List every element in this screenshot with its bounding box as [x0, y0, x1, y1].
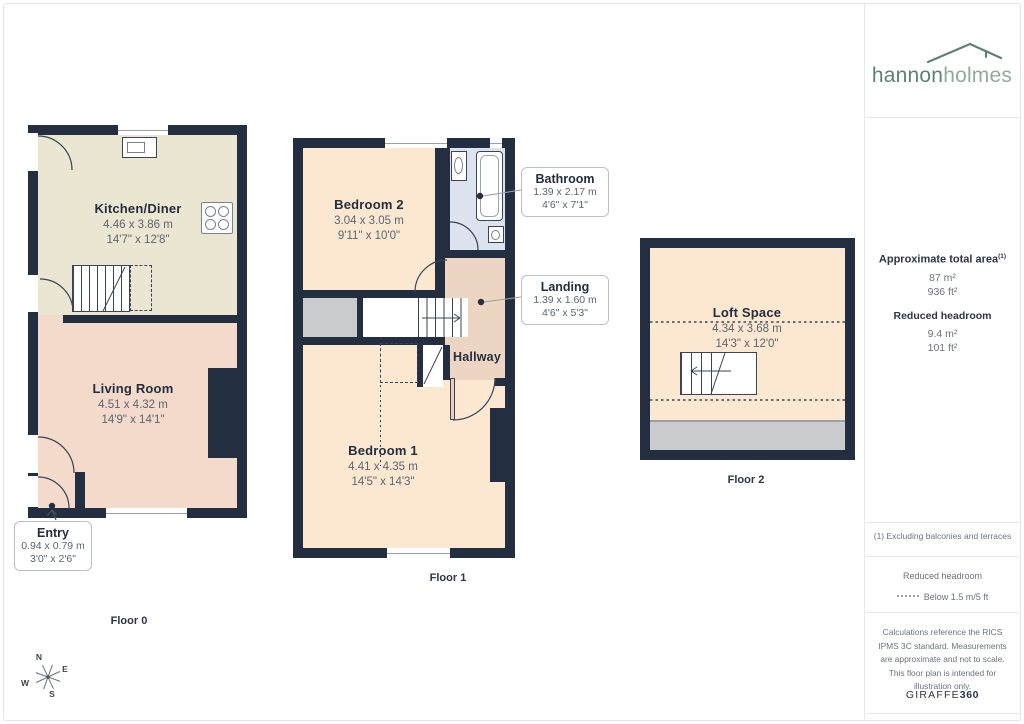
wall [63, 315, 237, 323]
compass-south-label: S [49, 689, 55, 699]
callout-name: Entry [17, 526, 89, 540]
callout-dim-imperial: 4'6" x 7'1" [524, 199, 606, 212]
door-leaf [450, 378, 455, 420]
total-area-title: Approximate total area(1) [866, 253, 1019, 266]
room-bedroom2 [303, 148, 435, 290]
compass-east-label: E [62, 664, 68, 674]
stair-treads [681, 353, 713, 394]
legend-title: Reduced headroom [866, 571, 1019, 581]
floor0-plan [28, 125, 247, 518]
brand-logo-part1: hannon [872, 64, 943, 87]
callout-dim-imperial: 3'0" x 2'6" [17, 553, 89, 566]
floor2-label: Floor 2 [711, 474, 781, 486]
wall [495, 378, 505, 386]
reduced-headroom-area [650, 422, 845, 450]
stove-icon [201, 202, 233, 234]
compass-north-label: N [36, 652, 42, 662]
stair-void-lower [423, 345, 443, 387]
giraffe-text: GIRAFFE [906, 689, 960, 701]
sink-bowl [454, 157, 463, 174]
door-opening [28, 275, 38, 312]
reduced-headroom-title: Reduced headroom [866, 310, 1019, 322]
floor2-plan [640, 238, 855, 460]
callout-dim-metric: 0.94 x 0.79 m [17, 540, 89, 553]
sidebar-rule [866, 612, 1019, 613]
total-area-imperial: 936 ft² [866, 285, 1019, 300]
wall [443, 345, 450, 380]
roof-icon [924, 40, 1006, 64]
wall [478, 250, 505, 258]
brand-logo-text: hannonholmes [866, 64, 1018, 88]
dotted-line-icon [897, 595, 919, 597]
burner-icon [205, 206, 216, 217]
callout-landing: Landing 1.39 x 1.60 m 4'6" x 5'3" [521, 275, 609, 325]
burner-icon [218, 219, 229, 230]
callout-dim-metric: 1.39 x 1.60 m [524, 294, 606, 307]
giraffe360-brand: GIRAFFE360 [866, 689, 1019, 701]
entry-wall [75, 472, 85, 508]
wall [303, 290, 415, 298]
sink-basin [127, 142, 145, 153]
callout-dim-imperial: 4'6" x 5'3" [524, 307, 606, 320]
stairwell-void [363, 298, 418, 337]
bathtub [476, 151, 503, 221]
burner-icon [205, 219, 216, 230]
bathroom-sink [451, 151, 467, 181]
bathroom-window [490, 138, 502, 148]
bedroom1-window [387, 548, 450, 558]
chimney-breast-wall [490, 408, 505, 482]
floor0-label: Floor 0 [94, 615, 164, 627]
sidebar-rule [866, 556, 1019, 557]
bathtub-inner [480, 155, 499, 217]
living-room-window [106, 508, 187, 518]
legend-value: Below 1.5 m/5 ft [924, 592, 989, 602]
compass-west-label: W [21, 678, 29, 688]
sidebar-rule [866, 117, 1019, 118]
area-footnote: (1) Excluding balconies and terraces [866, 531, 1019, 541]
door-opening [28, 133, 38, 171]
reduced-headroom-metric: 9.4 m² [866, 327, 1019, 342]
reduced-headroom-imperial: 101 ft² [866, 341, 1019, 356]
wall [435, 148, 450, 250]
callout-bathroom: Bathroom 1.39 x 2.17 m 4'6" x 7'1" [521, 167, 609, 217]
sidebar-divider [864, 4, 865, 720]
staircase [418, 298, 468, 337]
staircase [72, 265, 130, 312]
door-opening [28, 435, 38, 473]
loft-staircase [680, 352, 757, 395]
callout-dim-metric: 1.39 x 2.17 m [524, 186, 606, 199]
legend-row: Below 1.5 m/5 ft [866, 587, 1019, 605]
callout-entry: Entry 0.94 x 0.79 m 3'0" x 2'6" [14, 521, 92, 571]
brand-logo: hannonholmes [866, 40, 1018, 96]
reduced-headroom-values: 9.4 m² 101 ft² [866, 327, 1019, 356]
sidebar-rule [866, 713, 1019, 714]
burner-icon [218, 206, 229, 217]
toilet-bowl [491, 230, 500, 240]
total-area-values: 87 m² 936 ft² [866, 271, 1019, 300]
reduced-headroom-area [303, 298, 357, 337]
disclaimer-text: Calculations reference the RICS IPMS 3C … [872, 626, 1013, 694]
footnote-marker: (1) [998, 253, 1006, 260]
callout-name: Bathroom [524, 172, 606, 186]
staircase-dashed-extent [130, 265, 152, 311]
wall [445, 250, 450, 258]
floor1-label: Floor 1 [413, 572, 483, 584]
total-area-metric: 87 m² [866, 271, 1019, 286]
sidebar-rule [866, 522, 1019, 523]
area-summary: Approximate total area(1) 87 m² 936 ft² … [866, 253, 1019, 356]
toilet [488, 226, 504, 243]
floor1-plan [293, 138, 515, 558]
kitchen-sink [122, 137, 157, 158]
brand-logo-part2: holmes [943, 64, 1012, 87]
door-opening [28, 476, 38, 507]
chimney-breast-wall [208, 368, 237, 458]
headroom-legend: Reduced headroom Below 1.5 m/5 ft [866, 571, 1019, 605]
giraffe-360: 360 [960, 689, 979, 701]
reduced-headroom-dashed [380, 343, 418, 383]
bedroom2-window [385, 138, 447, 148]
total-area-label: Approximate total area [879, 254, 998, 266]
kitchen-window [118, 125, 168, 135]
callout-name: Landing [524, 280, 606, 294]
